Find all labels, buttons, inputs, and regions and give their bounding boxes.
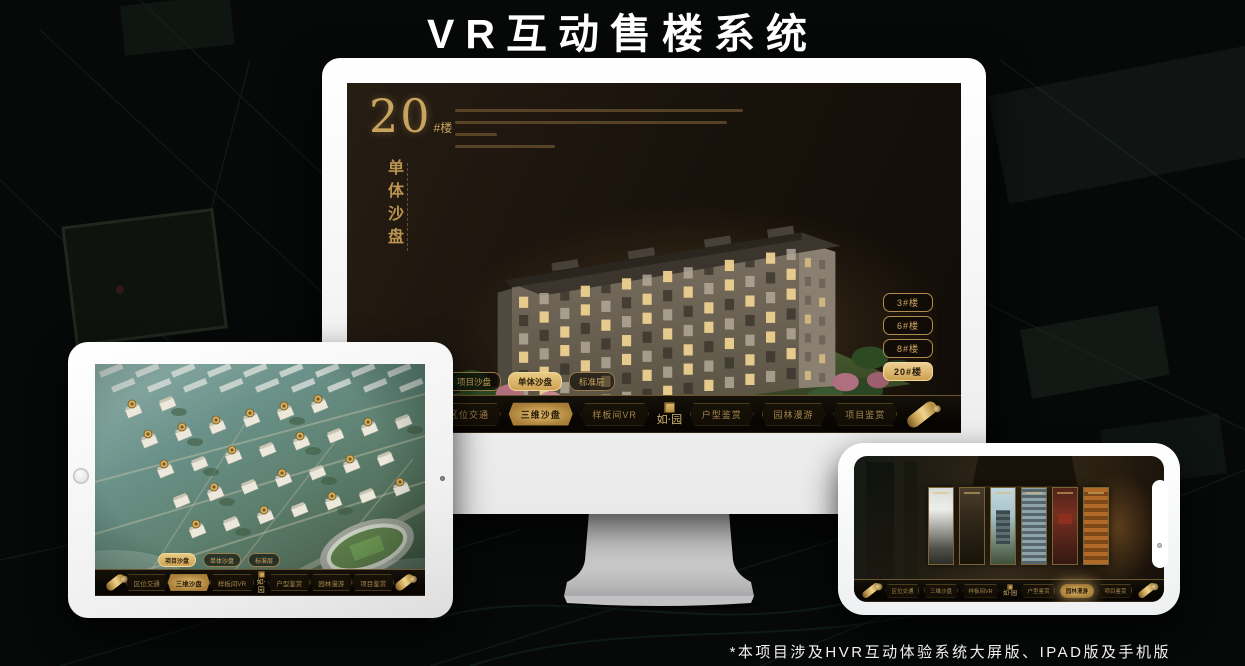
description-line xyxy=(455,109,743,112)
nav-item-garden-tour[interactable]: 园林漫游 xyxy=(310,574,352,591)
tab-project-sandbox[interactable]: 项目沙盘 xyxy=(447,372,501,391)
nav-item-sandbox-3d[interactable]: 三维沙盘 xyxy=(924,584,958,598)
background-plaque xyxy=(63,210,226,345)
gallery-panel-interior-light[interactable] xyxy=(928,487,954,565)
phone-screen: 区位交通三维沙盘样板间VR如·园户型鉴赏园林漫游项目鉴赏 xyxy=(854,456,1164,602)
scroll-menu-icon[interactable] xyxy=(1137,582,1157,600)
brand-logo-text: 如·园 xyxy=(1003,591,1017,597)
headline-subtitle-english xyxy=(407,163,408,251)
brand-logo-text: 如·园 xyxy=(254,579,268,594)
nav-item-unit-appreciation[interactable]: 户型鉴赏 xyxy=(268,574,310,591)
description-line xyxy=(455,133,497,136)
brand-logo: 如·园 xyxy=(657,402,683,426)
floor-button-8[interactable]: 8#楼 xyxy=(883,339,933,358)
nav-item-project-appreciation[interactable]: 项目鉴赏 xyxy=(833,403,897,426)
floor-button-20[interactable]: 20#楼 xyxy=(883,362,933,381)
gallery-panel-exterior-day[interactable] xyxy=(990,487,1016,565)
floor-button-6[interactable]: 6#楼 xyxy=(883,316,933,335)
sandbox-mode-tabs: 项目沙盘单体沙盘标准层 xyxy=(158,553,280,567)
brand-logo: 如·园 xyxy=(254,571,268,594)
tablet-camera-icon xyxy=(440,476,445,481)
interior-pillar xyxy=(866,462,894,588)
project-description-lines xyxy=(455,109,743,157)
gallery-panel-signage-red[interactable] xyxy=(1052,487,1078,565)
interior-canopy xyxy=(972,456,1078,488)
edition-footnote: *本项目涉及HVR互动体验系统大屏版、IPAD版及手机版 xyxy=(730,641,1171,662)
poster: VR互动售楼系统 20#楼 单体沙盘 3#楼 xyxy=(0,0,1245,666)
nav-item-project-appreciation[interactable]: 项目鉴赏 xyxy=(1098,584,1132,598)
nav-item-garden-tour[interactable]: 园林漫游 xyxy=(762,403,826,426)
scroll-menu-icon[interactable] xyxy=(905,398,940,429)
nav-item-sandbox-3d[interactable]: 三维沙盘 xyxy=(168,574,210,591)
nav-item-location-traffic[interactable]: 区位交通 xyxy=(126,574,168,591)
nav-item-location-traffic[interactable]: 区位交通 xyxy=(885,584,919,598)
nav-item-model-room-vr[interactable]: 样板间VR xyxy=(210,574,255,591)
gallery-panel-interior-warm[interactable] xyxy=(1083,487,1109,565)
scroll-menu-icon[interactable] xyxy=(394,573,416,593)
brand-logo-text: 如·园 xyxy=(657,414,683,426)
building-number-unit: #楼 xyxy=(434,121,453,135)
nav-item-unit-appreciation[interactable]: 户型鉴赏 xyxy=(690,403,754,426)
scene-gallery xyxy=(928,487,1109,565)
tab-standard-floor[interactable]: 标准层 xyxy=(248,553,280,567)
brand-seal-icon xyxy=(664,402,675,413)
tab-single-sandbox[interactable]: 单体沙盘 xyxy=(508,372,562,391)
brand-seal-icon xyxy=(1007,584,1013,590)
scroll-menu-icon[interactable] xyxy=(861,582,881,600)
main-nav-bar: 区位交通三维沙盘样板间VR如·园户型鉴赏园林漫游项目鉴赏 xyxy=(854,579,1164,602)
floor-button-group: 3#楼6#楼8#楼20#楼 xyxy=(883,293,933,381)
tablet-home-button xyxy=(73,468,89,484)
monitor-stand xyxy=(553,512,765,612)
tab-single-sandbox[interactable]: 单体沙盘 xyxy=(203,553,241,567)
description-line xyxy=(455,145,555,148)
nav-item-model-room-vr[interactable]: 样板间VR xyxy=(580,403,649,426)
interior-pillar xyxy=(904,462,918,588)
building-number: 20 xyxy=(369,89,432,143)
phone-device: 区位交通三维沙盘样板间VR如·园户型鉴赏园林漫游项目鉴赏 xyxy=(838,443,1180,615)
nav-item-unit-appreciation[interactable]: 户型鉴赏 xyxy=(1021,584,1055,598)
scroll-menu-icon[interactable] xyxy=(104,573,126,593)
gallery-panel-interior-dark[interactable] xyxy=(959,487,985,565)
building-headline: 20#楼 xyxy=(369,93,452,139)
nav-item-garden-tour[interactable]: 园林漫游 xyxy=(1060,584,1094,598)
floor-button-3[interactable]: 3#楼 xyxy=(883,293,933,312)
nav-item-sandbox-3d[interactable]: 三维沙盘 xyxy=(509,403,573,426)
description-line xyxy=(455,121,727,124)
main-nav-bar: 区位交通三维沙盘样板间VR如·园户型鉴赏园林漫游项目鉴赏 xyxy=(95,569,425,596)
tab-standard-floor[interactable]: 标准层 xyxy=(569,372,615,391)
phone-camera-icon xyxy=(1157,543,1162,548)
nav-item-project-appreciation[interactable]: 项目鉴赏 xyxy=(352,574,394,591)
sandbox-mode-tabs: 项目沙盘单体沙盘标准层 xyxy=(447,372,615,391)
gallery-panel-facade-grid[interactable] xyxy=(1021,487,1047,565)
tablet-device: 项目沙盘单体沙盘标准层 区位交通三维沙盘样板间VR如·园户型鉴赏园林漫游项目鉴赏 xyxy=(68,342,453,618)
phone-notch xyxy=(1152,480,1168,568)
page-title: VR互动售楼系统 xyxy=(0,0,1245,60)
tablet-screen: 项目沙盘单体沙盘标准层 区位交通三维沙盘样板间VR如·园户型鉴赏园林漫游项目鉴赏 xyxy=(95,364,425,596)
tab-project-sandbox[interactable]: 项目沙盘 xyxy=(158,553,196,567)
headline-subtitle: 单体沙盘 xyxy=(381,159,405,251)
nav-item-model-room-vr[interactable]: 样板间VR xyxy=(962,584,998,598)
brand-logo: 如·园 xyxy=(1003,584,1017,597)
